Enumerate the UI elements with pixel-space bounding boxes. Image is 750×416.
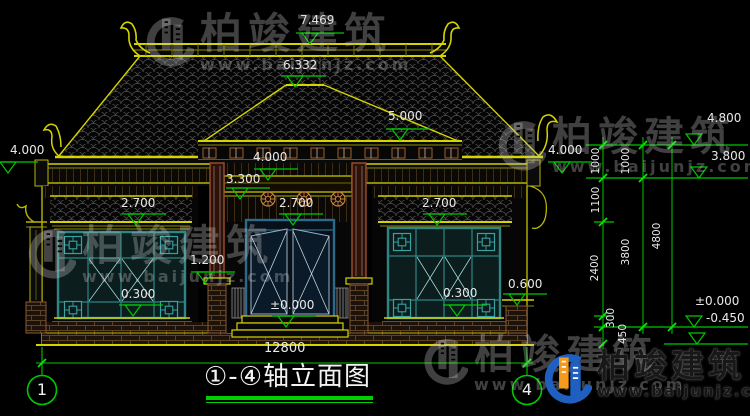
brand-logo-icon bbox=[540, 349, 592, 409]
cad-viewport: 7.469 6.332 5.000 4.000 4.000 4.000 3.30… bbox=[0, 0, 750, 416]
title-underline-thin bbox=[206, 402, 373, 403]
watermark-brand-text: 柏竣建筑 bbox=[552, 116, 750, 158]
watermark-logo-icon bbox=[24, 224, 76, 284]
right-window bbox=[382, 226, 506, 322]
axis-bubble-left-number: 1 bbox=[31, 382, 53, 398]
chain-dim-3800: 3800 bbox=[621, 239, 632, 266]
level-label-sill-right: 0.300 bbox=[443, 287, 477, 299]
chain-dim-300: 300 bbox=[606, 308, 617, 328]
watermark-url-text: www.baijunjz.com bbox=[82, 269, 293, 285]
level-label-roof-mid: 5.000 bbox=[388, 110, 422, 122]
watermark-right: 柏竣建筑 www.baijunjz.com bbox=[494, 116, 750, 176]
level-label-porch-eave: 4.000 bbox=[253, 151, 287, 163]
level-label-right-ground: -0.450 bbox=[706, 312, 745, 324]
level-label-wing-eave-left: 2.700 bbox=[121, 197, 155, 209]
brand-logo: 柏竣建筑 www.baijunjz.com bbox=[540, 349, 750, 409]
title-underline-thick bbox=[206, 396, 373, 400]
level-label-side-wall-cap: 0.600 bbox=[508, 278, 542, 290]
level-label-door-head: 2.700 bbox=[279, 197, 313, 209]
entry-steps bbox=[232, 316, 348, 337]
level-label-beam-top: 3.300 bbox=[226, 173, 260, 185]
eave-corner-left bbox=[44, 124, 61, 157]
watermark-logo-icon bbox=[420, 334, 468, 390]
watermark-brand-text: 柏竣建筑 bbox=[82, 224, 293, 268]
watermark-brand-text: 柏竣建筑 bbox=[200, 12, 411, 56]
porch-cornice bbox=[198, 141, 462, 163]
drawing-title: ①-④轴立面图 bbox=[204, 363, 371, 391]
beam-rosette bbox=[331, 192, 345, 206]
watermark-logo-icon bbox=[142, 12, 194, 72]
level-label-floor: ±0.000 bbox=[270, 299, 314, 311]
watermark-logo-icon bbox=[494, 116, 546, 176]
level-label-wing-eave-right: 2.700 bbox=[422, 197, 456, 209]
chain-dim-1100: 1100 bbox=[591, 187, 602, 214]
level-label-eave-left: 4.000 bbox=[10, 144, 44, 156]
brand-logo-name: 柏竣建筑 bbox=[597, 349, 750, 383]
beam-rosette bbox=[261, 192, 275, 206]
watermark-url-text: www.baijunjz.com bbox=[200, 57, 411, 73]
watermark-top: 柏竣建筑 www.baijunjz.com bbox=[142, 12, 411, 73]
level-label-sill-left: 0.300 bbox=[121, 288, 155, 300]
overall-width-dimension: 12800 bbox=[264, 343, 305, 355]
watermark-left: 柏竣建筑 www.baijunjz.com bbox=[24, 224, 293, 285]
chain-dim-4800: 4800 bbox=[652, 223, 663, 250]
brand-logo-url: www.baijunjz.com bbox=[597, 384, 750, 399]
level-label-right-floor: ±0.000 bbox=[695, 295, 739, 307]
watermark-url-text: www.baijunjz.com bbox=[552, 159, 750, 175]
chain-dim-2400: 2400 bbox=[590, 255, 601, 282]
